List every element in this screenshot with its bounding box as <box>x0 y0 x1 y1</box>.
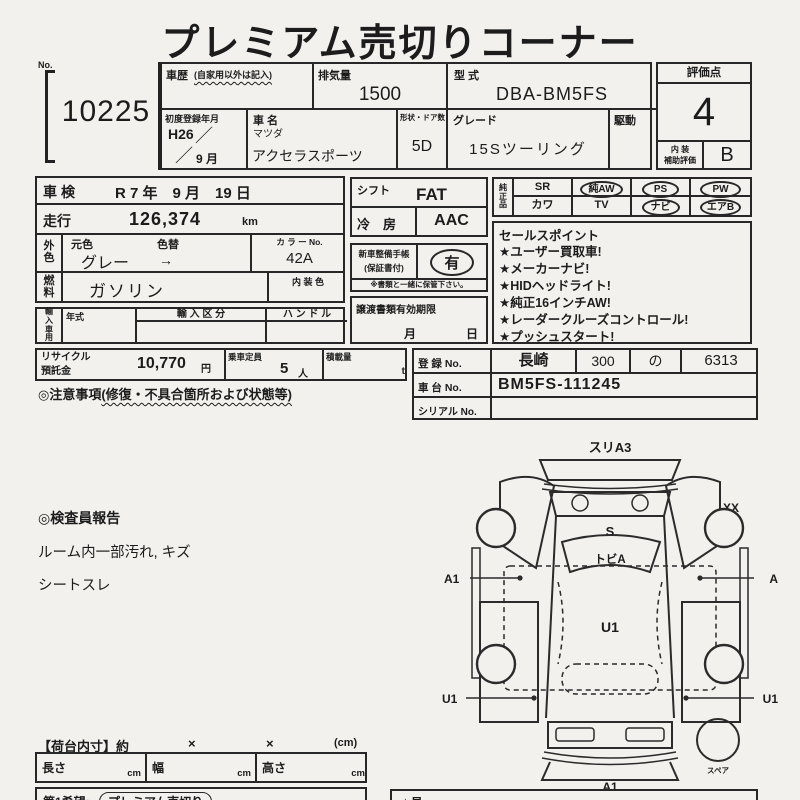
interior-color-label: 内 装 色 <box>269 275 347 288</box>
serial-row: シリアル No. <box>414 398 756 420</box>
sales-points-box: セールスポイント ★ユーザー買取車! ★メーカーナビ! ★HIDヘッドライト! … <box>492 221 752 344</box>
equip-sr: SR <box>514 179 573 197</box>
shape-doors-value: 5D <box>398 138 446 156</box>
shift-row: シフト FAT <box>352 179 486 208</box>
sales-point-item: ★プッシュスタート! <box>494 329 750 346</box>
cargo-unit: (cm) <box>334 737 357 749</box>
serial-no-label: シリアル No. <box>418 403 477 418</box>
cargo-table: 長さ cm 幅 cm 高さ cm <box>35 752 367 783</box>
equipment-grid: 純正品 SR 純AW PS PW カワ TV ナビ エアB <box>492 177 752 217</box>
lot-no-label: No. <box>38 60 53 70</box>
mileage-unit: km <box>242 216 258 228</box>
maker-name: マツダ <box>253 125 283 140</box>
fuel-value: ガソリン <box>89 277 165 302</box>
history-cell: 車歴 (自家用以外は記入) <box>162 64 314 110</box>
diagram-label-windshield: トビA <box>594 552 625 566</box>
service-book-label: 新車整備手帳(保証書付) <box>352 245 418 280</box>
cargo-x2: × <box>266 736 274 751</box>
rear-left-wheel <box>477 645 515 683</box>
first-registration-year: H26 <box>168 126 194 142</box>
diagram-label-left-front: A1 <box>444 572 460 586</box>
interior-rating-label: 内 装補助評価 <box>658 142 704 168</box>
handle-cell: ハ ン ド ル <box>267 309 347 342</box>
year-cell: 年式 <box>63 309 137 342</box>
recycle-unit: 円 <box>201 360 211 375</box>
recycle-label: リサイクル預託金 <box>41 351 91 378</box>
grade-label: グレード <box>453 112 497 128</box>
spare-tire-shape <box>697 719 739 761</box>
history-note: (自家用以外は記入) <box>194 68 272 81</box>
color-no-value: 42A <box>252 250 347 267</box>
import-block: 輸入車用 年式 輸 入 区 分 ハ ン ド ル <box>35 307 345 344</box>
capacity-unit: 人 <box>298 365 308 380</box>
chassis-no-label: 車 台 No. <box>418 380 462 395</box>
ac-value: AAC <box>415 208 486 235</box>
cargo-length-cell: 長さ cm <box>37 754 147 781</box>
auction-sheet: プレミアム売切りコーナー No. 10225 車歴 (自家用以外は記入) 排気量… <box>0 0 800 800</box>
recycle-box: リサイクル預託金 10,770 円 乗車定員 5 人 積載量 t <box>35 348 407 381</box>
reg-number: 6313 <box>680 350 760 372</box>
caution-note: ◎注意事項(修復・不具合箇所および状態等) <box>38 384 292 403</box>
recolor-label: 色替 <box>157 236 179 252</box>
front-left-wheel <box>477 509 515 547</box>
ac-label: 冷 房 <box>357 214 396 233</box>
displacement-label: 排気量 <box>318 67 351 83</box>
reg-kana: の <box>629 350 680 372</box>
year-label: 年式 <box>66 310 84 323</box>
grade-cell: グレード 15Sツーリング <box>448 110 610 170</box>
first-registration-month: 9 月 <box>196 150 218 167</box>
equip-tv: TV <box>573 197 632 215</box>
shift-value: FAT <box>416 185 447 205</box>
mileage-label: 走行 <box>43 211 71 231</box>
chassis-value: BM5FS-111245 <box>498 376 621 394</box>
drive-label: 駆動 <box>614 112 636 128</box>
first-wish-row: 第1希望: プレミアム売切り <box>35 787 367 800</box>
grade-value: 15Sツーリング <box>448 138 608 159</box>
slash-mark-2: ／ <box>175 142 193 168</box>
service-book-box: 新車整備手帳(保証書付) 有 ※書類と一緒に保管下さい。 <box>350 243 488 292</box>
cargo-width-cell: 幅 cm <box>147 754 257 781</box>
service-book-value: 有 <box>430 249 473 276</box>
shaken-row: 車検 R 7 年 9 月 19 日 <box>37 178 343 205</box>
inspector-report-title: ◎検査員報告 <box>38 508 368 528</box>
diagram-label-right-rear: U1 <box>763 692 779 706</box>
diagram-label-left-rear: U1 <box>442 692 458 706</box>
equip-oem-aw: 純AW <box>573 179 632 197</box>
sales-point-item: ★HIDヘッドライト! <box>494 278 750 295</box>
vehicle-summary-table: 車歴 (自家用以外は記入) 排気量 1500 型 式 DBA-BM5FS 初度登… <box>158 62 652 170</box>
inspector-report-line: ルーム内一部汚れ, キズ <box>38 541 368 562</box>
chassis-row: 車 台 No. BM5FS-111245 <box>414 374 756 398</box>
lot-number: 10225 <box>58 95 154 129</box>
registration-row: 登 録 No. 長崎 300 の 6313 <box>414 350 756 374</box>
original-color-value: グレー <box>81 249 129 273</box>
footer-right-box: ★見 <box>390 789 758 800</box>
transfer-docs-box: 譲渡書類有効期限 月 日 <box>350 296 488 344</box>
sales-point-item: ★純正16インチAW! <box>494 295 750 312</box>
vehicle-detail-block: 車検 R 7 年 9 月 19 日 走行 126,374 km 外色 元色 色替… <box>35 176 345 303</box>
first-registration-cell: 初度登録年月 H26 ／ ／ 9 月 <box>162 110 248 170</box>
mileage-row: 走行 126,374 km <box>37 205 343 235</box>
page-title: プレミアム売切りコーナー <box>0 12 800 67</box>
transfer-day-label: 日 <box>466 325 478 342</box>
import-class-cell: 輸 入 区 分 <box>137 309 267 342</box>
fuel-row: 燃料 ガソリン 内 装 色 <box>37 273 343 303</box>
color-row: 外色 元色 色替 グレー → カ ラ ー No. 42A <box>37 235 343 273</box>
shape-doors-label: 形状・ドア数 <box>400 112 445 123</box>
footer-right-fragment: ★見 <box>400 794 423 800</box>
cargo-header: 【荷台内寸】約 × × (cm) <box>38 736 378 752</box>
shaken-value: R 7 年 9 月 19 日 <box>115 182 251 203</box>
import-label: 輸入車用 <box>45 308 54 343</box>
registration-block: 登 録 No. 長崎 300 の 6313 車 台 No. BM5FS-1112… <box>412 348 758 420</box>
shaken-label: 車検 <box>43 182 79 202</box>
transfer-label: 譲渡書類有効期限 <box>356 301 436 316</box>
color-no-label: カ ラ ー No. <box>252 236 347 248</box>
diagram-label-hood: S <box>606 524 615 539</box>
cargo-x1: × <box>188 736 196 751</box>
rating-box: 評価点 4 内 装補助評価 B <box>656 62 752 170</box>
diagram-label-roof: U1 <box>601 619 619 635</box>
shift-ac-box: シフト FAT 冷 房 AAC <box>350 177 488 237</box>
first-wish-label: 第1希望: <box>43 793 90 800</box>
service-book-note: ※書類と一緒に保管下さい。 <box>352 278 486 290</box>
caution-detail: (修復・不具合箇所および状態等) <box>101 387 292 402</box>
capacity-cell: 乗車定員 5 人 <box>224 350 322 379</box>
shift-label: シフト <box>357 182 390 198</box>
displacement-cell: 排気量 1500 <box>314 64 448 110</box>
model-code-cell: 型 式 DBA-BM5FS <box>448 64 656 110</box>
inspector-report: ◎検査員報告 ルーム内一部汚れ, キズ シートスレ <box>38 508 368 595</box>
sales-point-item: ★レーダークルーズコントロール! <box>494 312 750 329</box>
lot-bracket <box>45 70 55 163</box>
load-label: 積載量 <box>326 351 352 363</box>
equip-leather: カワ <box>514 197 573 215</box>
rear-right-wheel <box>705 645 743 683</box>
slash-mark: ／ <box>195 122 213 148</box>
reg-area: 長崎 <box>490 350 575 372</box>
history-label: 車歴 <box>166 67 188 83</box>
equip-airbag: エアB <box>691 197 750 215</box>
caution-prefix: ◎注意事項 <box>38 387 101 402</box>
front-right-wheel <box>705 509 743 547</box>
capacity-value: 5 <box>280 360 288 377</box>
reg-class: 300 <box>575 350 629 372</box>
load-unit: t <box>402 366 405 377</box>
sales-point-item: ★ユーザー買取車! <box>494 244 750 261</box>
diagram-label-front-top: スリA3 <box>589 440 632 455</box>
model-code-value: DBA-BM5FS <box>448 84 656 105</box>
fuel-label: 燃料 <box>43 276 55 300</box>
transfer-month-label: 月 <box>404 325 416 342</box>
equip-pw: PW <box>691 179 750 197</box>
model-code-label: 型 式 <box>454 67 479 83</box>
drive-cell: 駆動 <box>610 110 652 170</box>
oem-parts-label: 純正品 <box>499 184 508 210</box>
exterior-color-label: 外色 <box>43 241 55 265</box>
diagram-label-right-front: A <box>769 572 778 586</box>
equip-ps: PS <box>632 179 691 197</box>
car-name-value: アクセラスポーツ <box>252 146 363 166</box>
inspector-report-line: シートスレ <box>38 574 368 595</box>
car-name-cell: 車 名 マツダ アクセラスポーツ <box>248 110 398 170</box>
diagram-label-spare: スペア <box>707 766 729 775</box>
handle-label: ハ ン ド ル <box>267 309 347 322</box>
reg-no-label: 登 録 No. <box>418 356 462 371</box>
front-bumper-shape <box>540 460 680 480</box>
damage-diagram: スリA3 S トビA XX U1 <box>440 430 780 792</box>
cargo-height-cell: 高さ cm <box>257 754 369 781</box>
rating-score: 4 <box>658 84 750 140</box>
capacity-label: 乗車定員 <box>228 351 262 363</box>
shape-doors-cell: 形状・ドア数 5D <box>398 110 448 170</box>
interior-rating-score: B <box>704 142 750 168</box>
sales-point-item: ★メーカーナビ! <box>494 261 750 278</box>
recycle-value: 10,770 <box>137 355 186 373</box>
ac-row: 冷 房 AAC <box>352 208 486 235</box>
mileage-value: 126,374 <box>129 209 201 230</box>
recolor-arrow: → <box>159 252 173 268</box>
import-class-label: 輸 入 区 分 <box>137 309 265 322</box>
sales-points-title: セールスポイント <box>494 223 750 244</box>
displacement-value: 1500 <box>314 84 446 106</box>
load-cell: 積載量 t <box>322 350 409 379</box>
equip-navi: ナビ <box>632 197 691 215</box>
rating-label: 評価点 <box>658 64 750 84</box>
first-wish-value: プレミアム売切り <box>99 792 212 800</box>
